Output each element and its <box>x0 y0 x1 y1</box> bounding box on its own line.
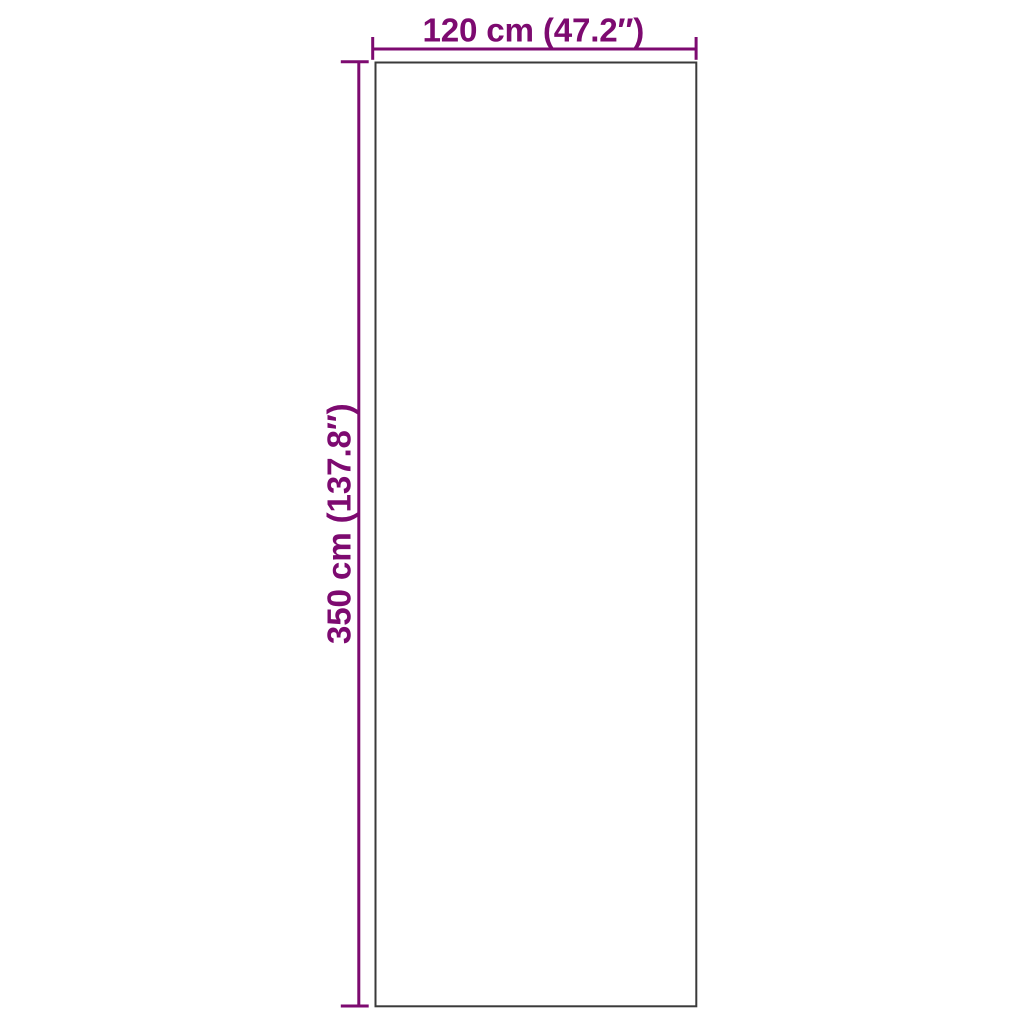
svg-text:350 cm (137.8″): 350 cm (137.8″) <box>322 404 359 645</box>
svg-text:120 cm (47.2″): 120 cm (47.2″) <box>423 12 645 49</box>
